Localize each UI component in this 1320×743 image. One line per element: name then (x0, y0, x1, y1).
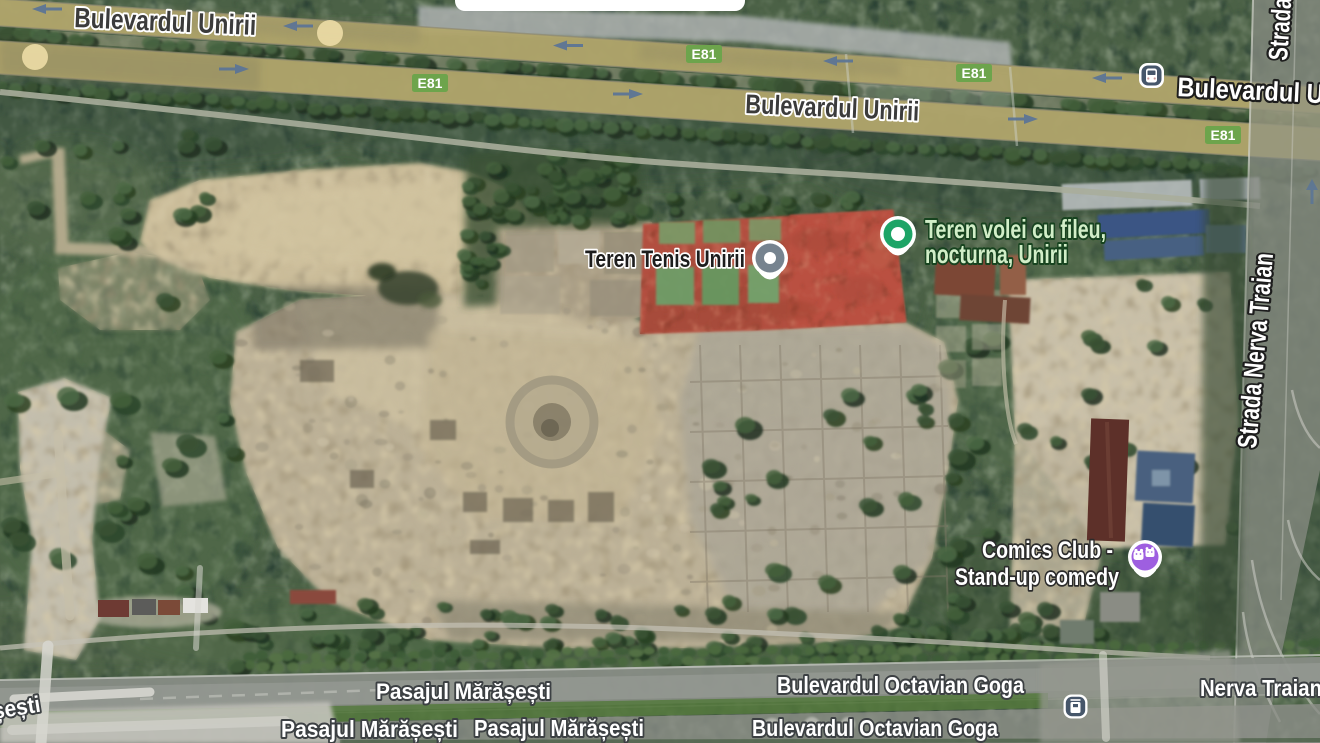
svg-text:Pasajul Mărășești: Pasajul Mărășești (281, 716, 458, 743)
svg-text:Teren Tenis Unirii: Teren Tenis Unirii (585, 246, 745, 273)
svg-text:Nerva Traian: Nerva Traian (1200, 675, 1320, 701)
svg-text:E81: E81 (692, 46, 717, 62)
svg-text:E81: E81 (1211, 127, 1236, 143)
svg-text:E81: E81 (962, 65, 987, 81)
svg-text:nocturna, Unirii: nocturna, Unirii (925, 239, 1068, 269)
svg-text:E81: E81 (418, 75, 443, 91)
svg-text:Stand-up comedy: Stand-up comedy (955, 564, 1120, 591)
svg-text:Bulevardul Octavian Goga: Bulevardul Octavian Goga (752, 715, 999, 741)
svg-text:Pasajul Mărășești: Pasajul Mărășești (376, 679, 551, 704)
svg-text:Bulevardul Octavian Goga: Bulevardul Octavian Goga (777, 672, 1024, 698)
svg-text:Strada: Strada (1263, 0, 1297, 61)
svg-text:Pasajul Mărășești: Pasajul Mărășești (474, 715, 644, 742)
svg-text:Comics Club -: Comics Club - (982, 537, 1113, 564)
